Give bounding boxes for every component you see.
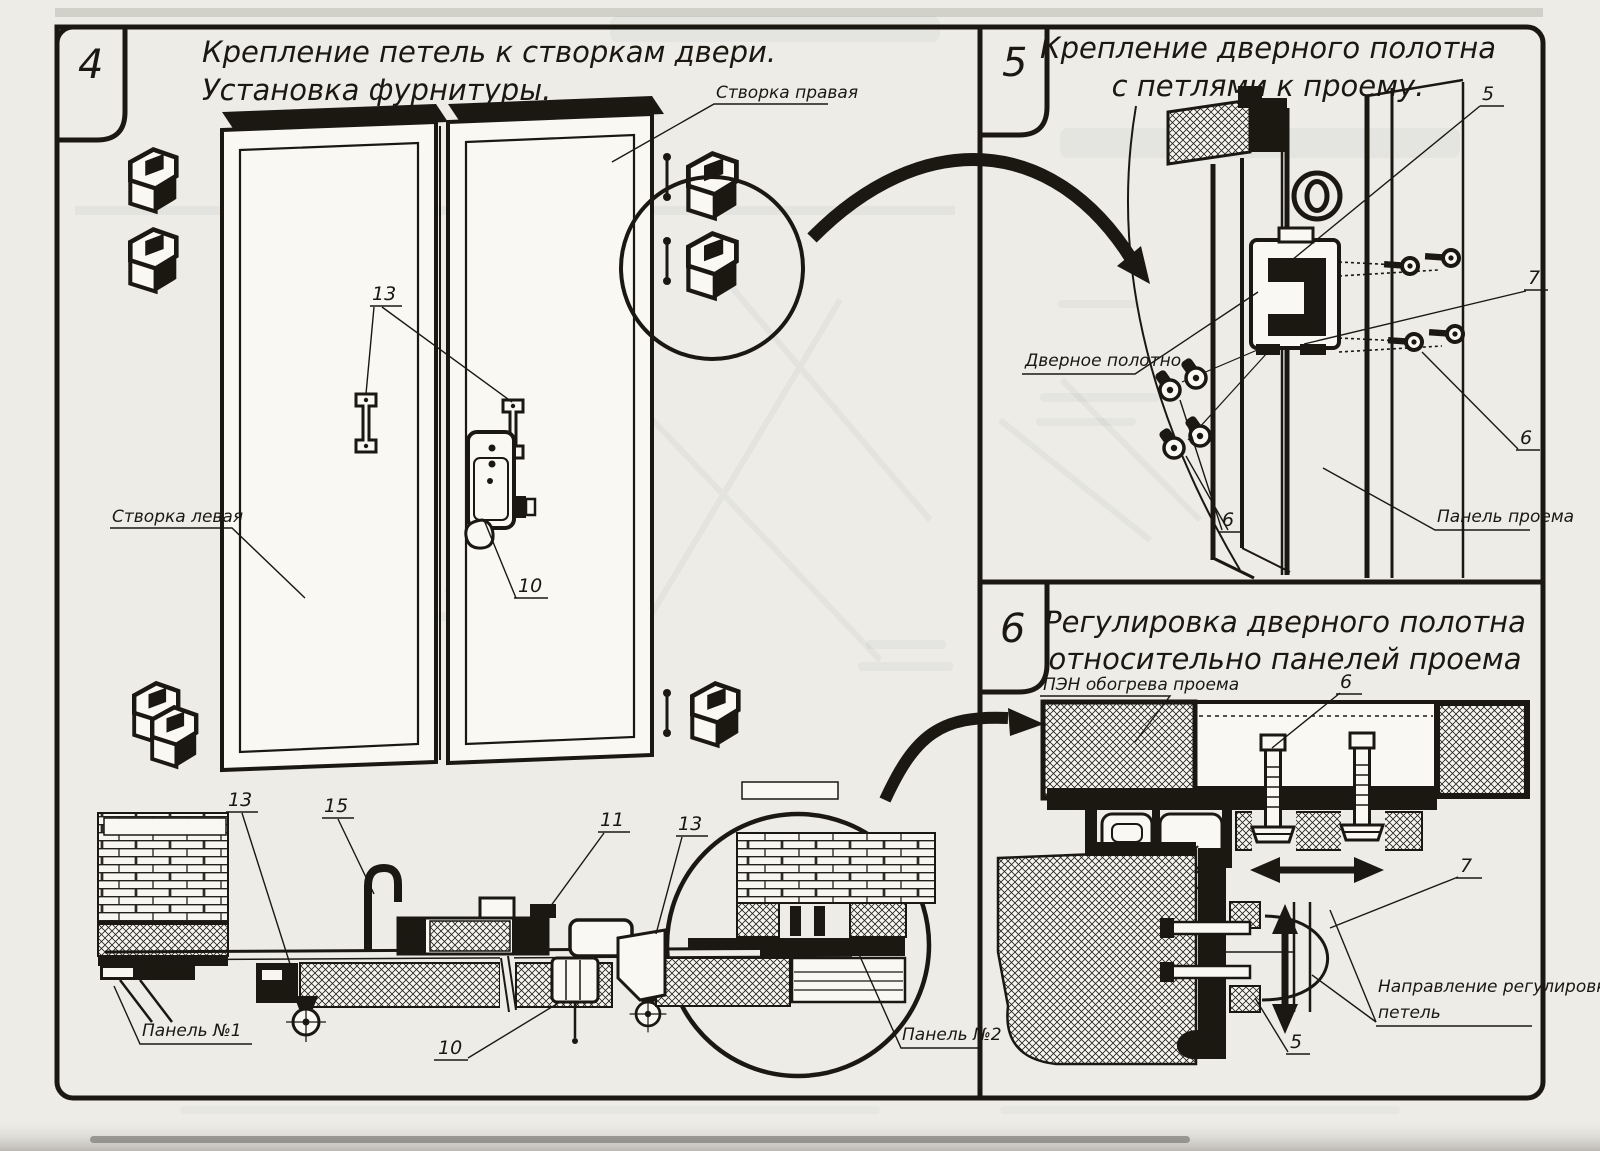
label-panel-1: Панель №1 bbox=[142, 1021, 242, 1041]
panel4-step-number: 4 bbox=[78, 42, 103, 88]
opening-panel-block bbox=[1437, 703, 1527, 796]
label-direction-line2: петель bbox=[1378, 1003, 1441, 1023]
label-heater: ПЭН обогрева проема bbox=[1043, 675, 1239, 695]
panel6-title-line2: относительно панелей проема bbox=[1049, 642, 1522, 676]
label-right-leaf: Створка правая bbox=[716, 83, 858, 103]
callout-7: 7 bbox=[1460, 855, 1472, 877]
callout-5: 5 bbox=[1290, 1031, 1302, 1053]
callout-6: 6 bbox=[1222, 509, 1234, 531]
label-left-leaf: Створка левая bbox=[112, 507, 243, 527]
panel6-title-line1: Регулировка дверного полотна bbox=[1044, 605, 1526, 639]
leaf-edge-bar bbox=[1198, 848, 1226, 1040]
callout-6: 6 bbox=[1340, 671, 1352, 693]
label-door-leaf: Дверное полотно bbox=[1024, 351, 1181, 371]
callout-10: 10 bbox=[518, 575, 542, 597]
callout-13: 13 bbox=[678, 813, 702, 835]
panel5-title-line1: Крепление дверного полотна bbox=[1040, 31, 1496, 65]
heater-block bbox=[1043, 702, 1195, 798]
callout-7: 7 bbox=[1528, 267, 1540, 289]
panel5-step-number: 5 bbox=[1002, 40, 1027, 86]
callout-13: 13 bbox=[372, 283, 396, 305]
label-direction-line1: Направление регулировки bbox=[1378, 977, 1600, 997]
panel4-title-line1: Крепление петель к створкам двери. bbox=[202, 35, 776, 69]
door-leaf-right bbox=[440, 96, 664, 763]
callout-6: 6 bbox=[1520, 427, 1532, 449]
panel4-title-line2: Установка фурнитуры. bbox=[202, 73, 551, 107]
scanned-assembly-drawing: 4 Крепление петель к створкам двери. Уст… bbox=[0, 0, 1600, 1151]
callout-11: 11 bbox=[600, 809, 624, 831]
callout-5: 5 bbox=[1482, 83, 1494, 105]
drawing-canvas: 4 Крепление петель к створкам двери. Уст… bbox=[0, 0, 1600, 1151]
wall-section bbox=[998, 850, 1196, 1064]
panel5-title-line2: с петлями к проему. bbox=[1112, 69, 1425, 103]
panel6-step-number: 6 bbox=[1000, 606, 1025, 652]
label-panel-2: Панель №2 bbox=[902, 1025, 1002, 1045]
callout-13: 13 bbox=[228, 789, 252, 811]
callout-10: 10 bbox=[438, 1037, 462, 1059]
hinge-on-leaf bbox=[1251, 228, 1339, 355]
door-leaf-left bbox=[222, 104, 448, 770]
label-opening-panel: Панель проема bbox=[1437, 507, 1574, 527]
callout-15: 15 bbox=[324, 795, 348, 817]
